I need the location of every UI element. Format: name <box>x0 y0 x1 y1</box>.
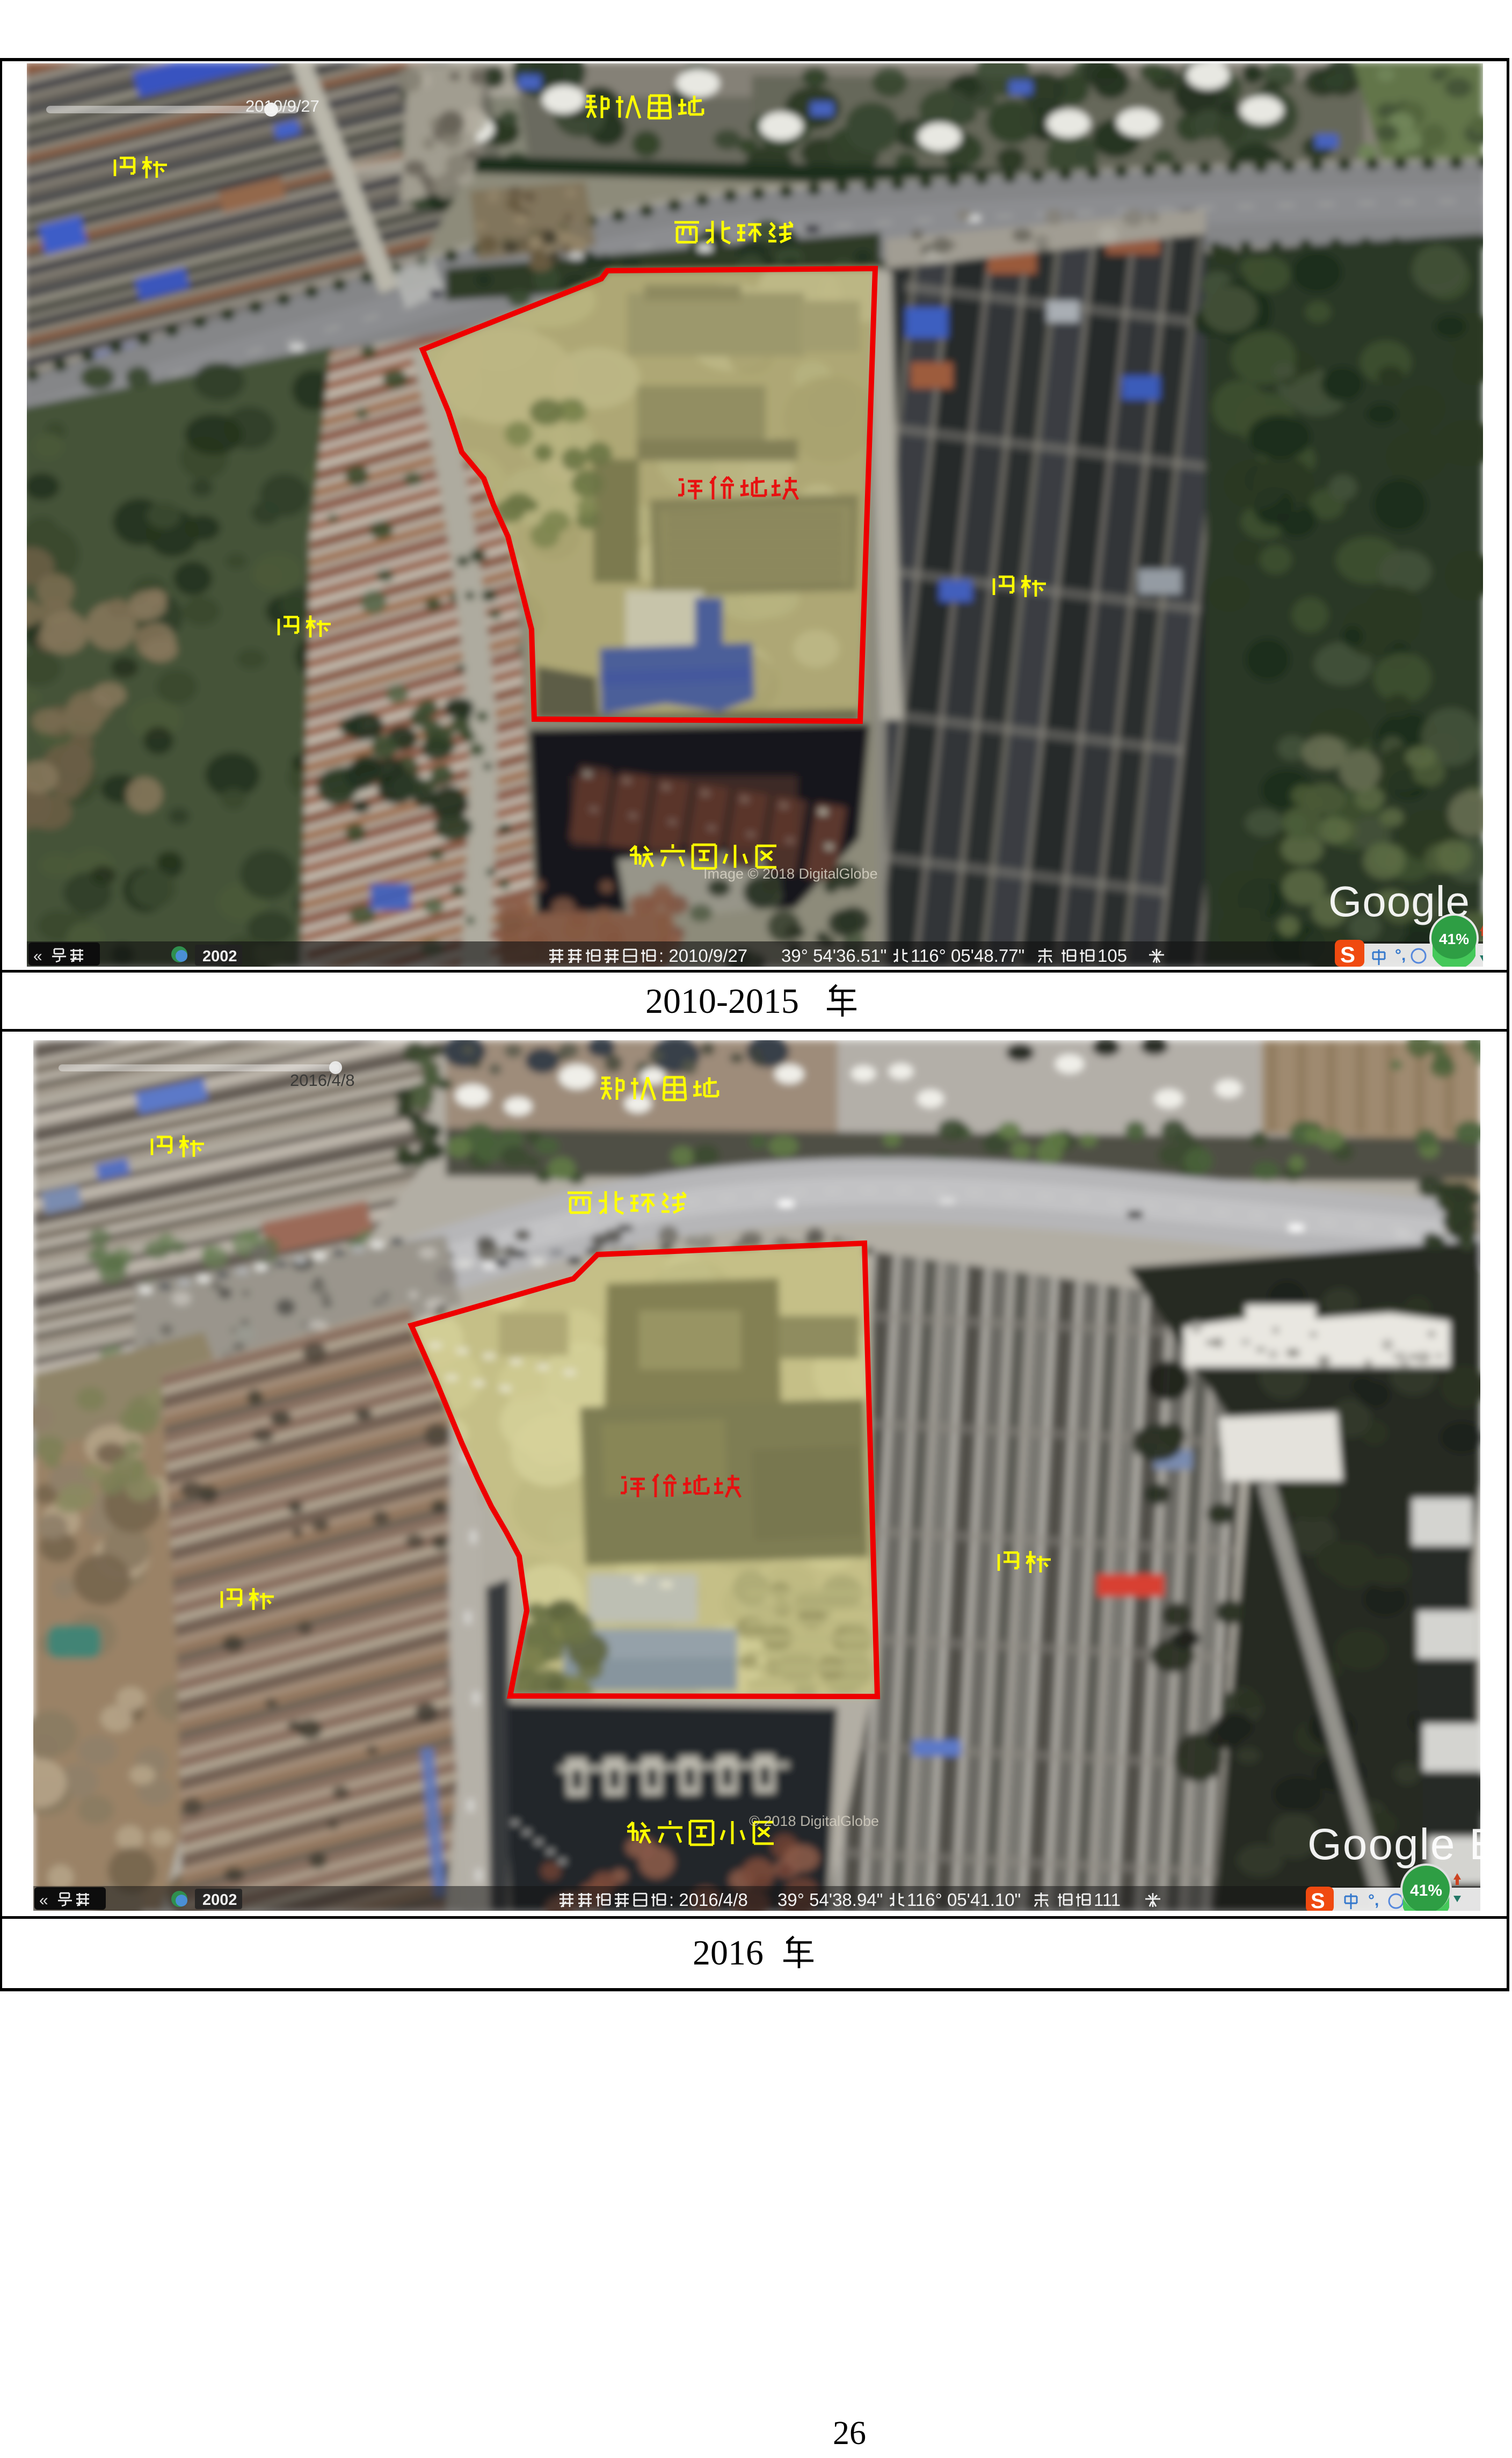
svg-text:105: 105 <box>1097 946 1127 966</box>
svg-text:«: « <box>39 1891 48 1909</box>
svg-text:41%: 41% <box>1439 931 1469 947</box>
svg-text:2016/4/8: 2016/4/8 <box>290 1071 355 1090</box>
svg-text:S: S <box>1311 1889 1325 1913</box>
svg-text:2002: 2002 <box>202 948 237 965</box>
svg-text:2002: 2002 <box>202 1891 237 1909</box>
svg-text:°,: °, <box>1368 1891 1379 1909</box>
svg-text:2016: 2016 <box>693 1933 764 1973</box>
svg-text:«: « <box>33 947 42 965</box>
svg-text:116° 05'41.10": 116° 05'41.10" <box>907 1890 1021 1910</box>
svg-text:2010-2015: 2010-2015 <box>645 982 799 1021</box>
svg-text:: 2010/9/27: : 2010/9/27 <box>659 946 747 966</box>
svg-text:111: 111 <box>1094 1890 1121 1910</box>
svg-text:Image © 2018 DigitalGlobe: Image © 2018 DigitalGlobe <box>703 866 878 882</box>
svg-text:39° 54'38.94": 39° 54'38.94" <box>777 1890 883 1910</box>
svg-text:© 2018 DigitalGlobe: © 2018 DigitalGlobe <box>749 1813 879 1829</box>
svg-text:41%: 41% <box>1410 1882 1442 1899</box>
svg-text:°,: °, <box>1395 946 1406 964</box>
svg-text:2010/9/27: 2010/9/27 <box>245 97 319 115</box>
svg-text:S: S <box>1340 942 1355 967</box>
svg-text:116° 05'48.77": 116° 05'48.77" <box>911 946 1024 966</box>
svg-text:39° 54'36.51": 39° 54'36.51" <box>781 946 886 966</box>
svg-text:: 2016/4/8: : 2016/4/8 <box>669 1890 748 1910</box>
svg-text:26: 26 <box>833 2415 866 2452</box>
